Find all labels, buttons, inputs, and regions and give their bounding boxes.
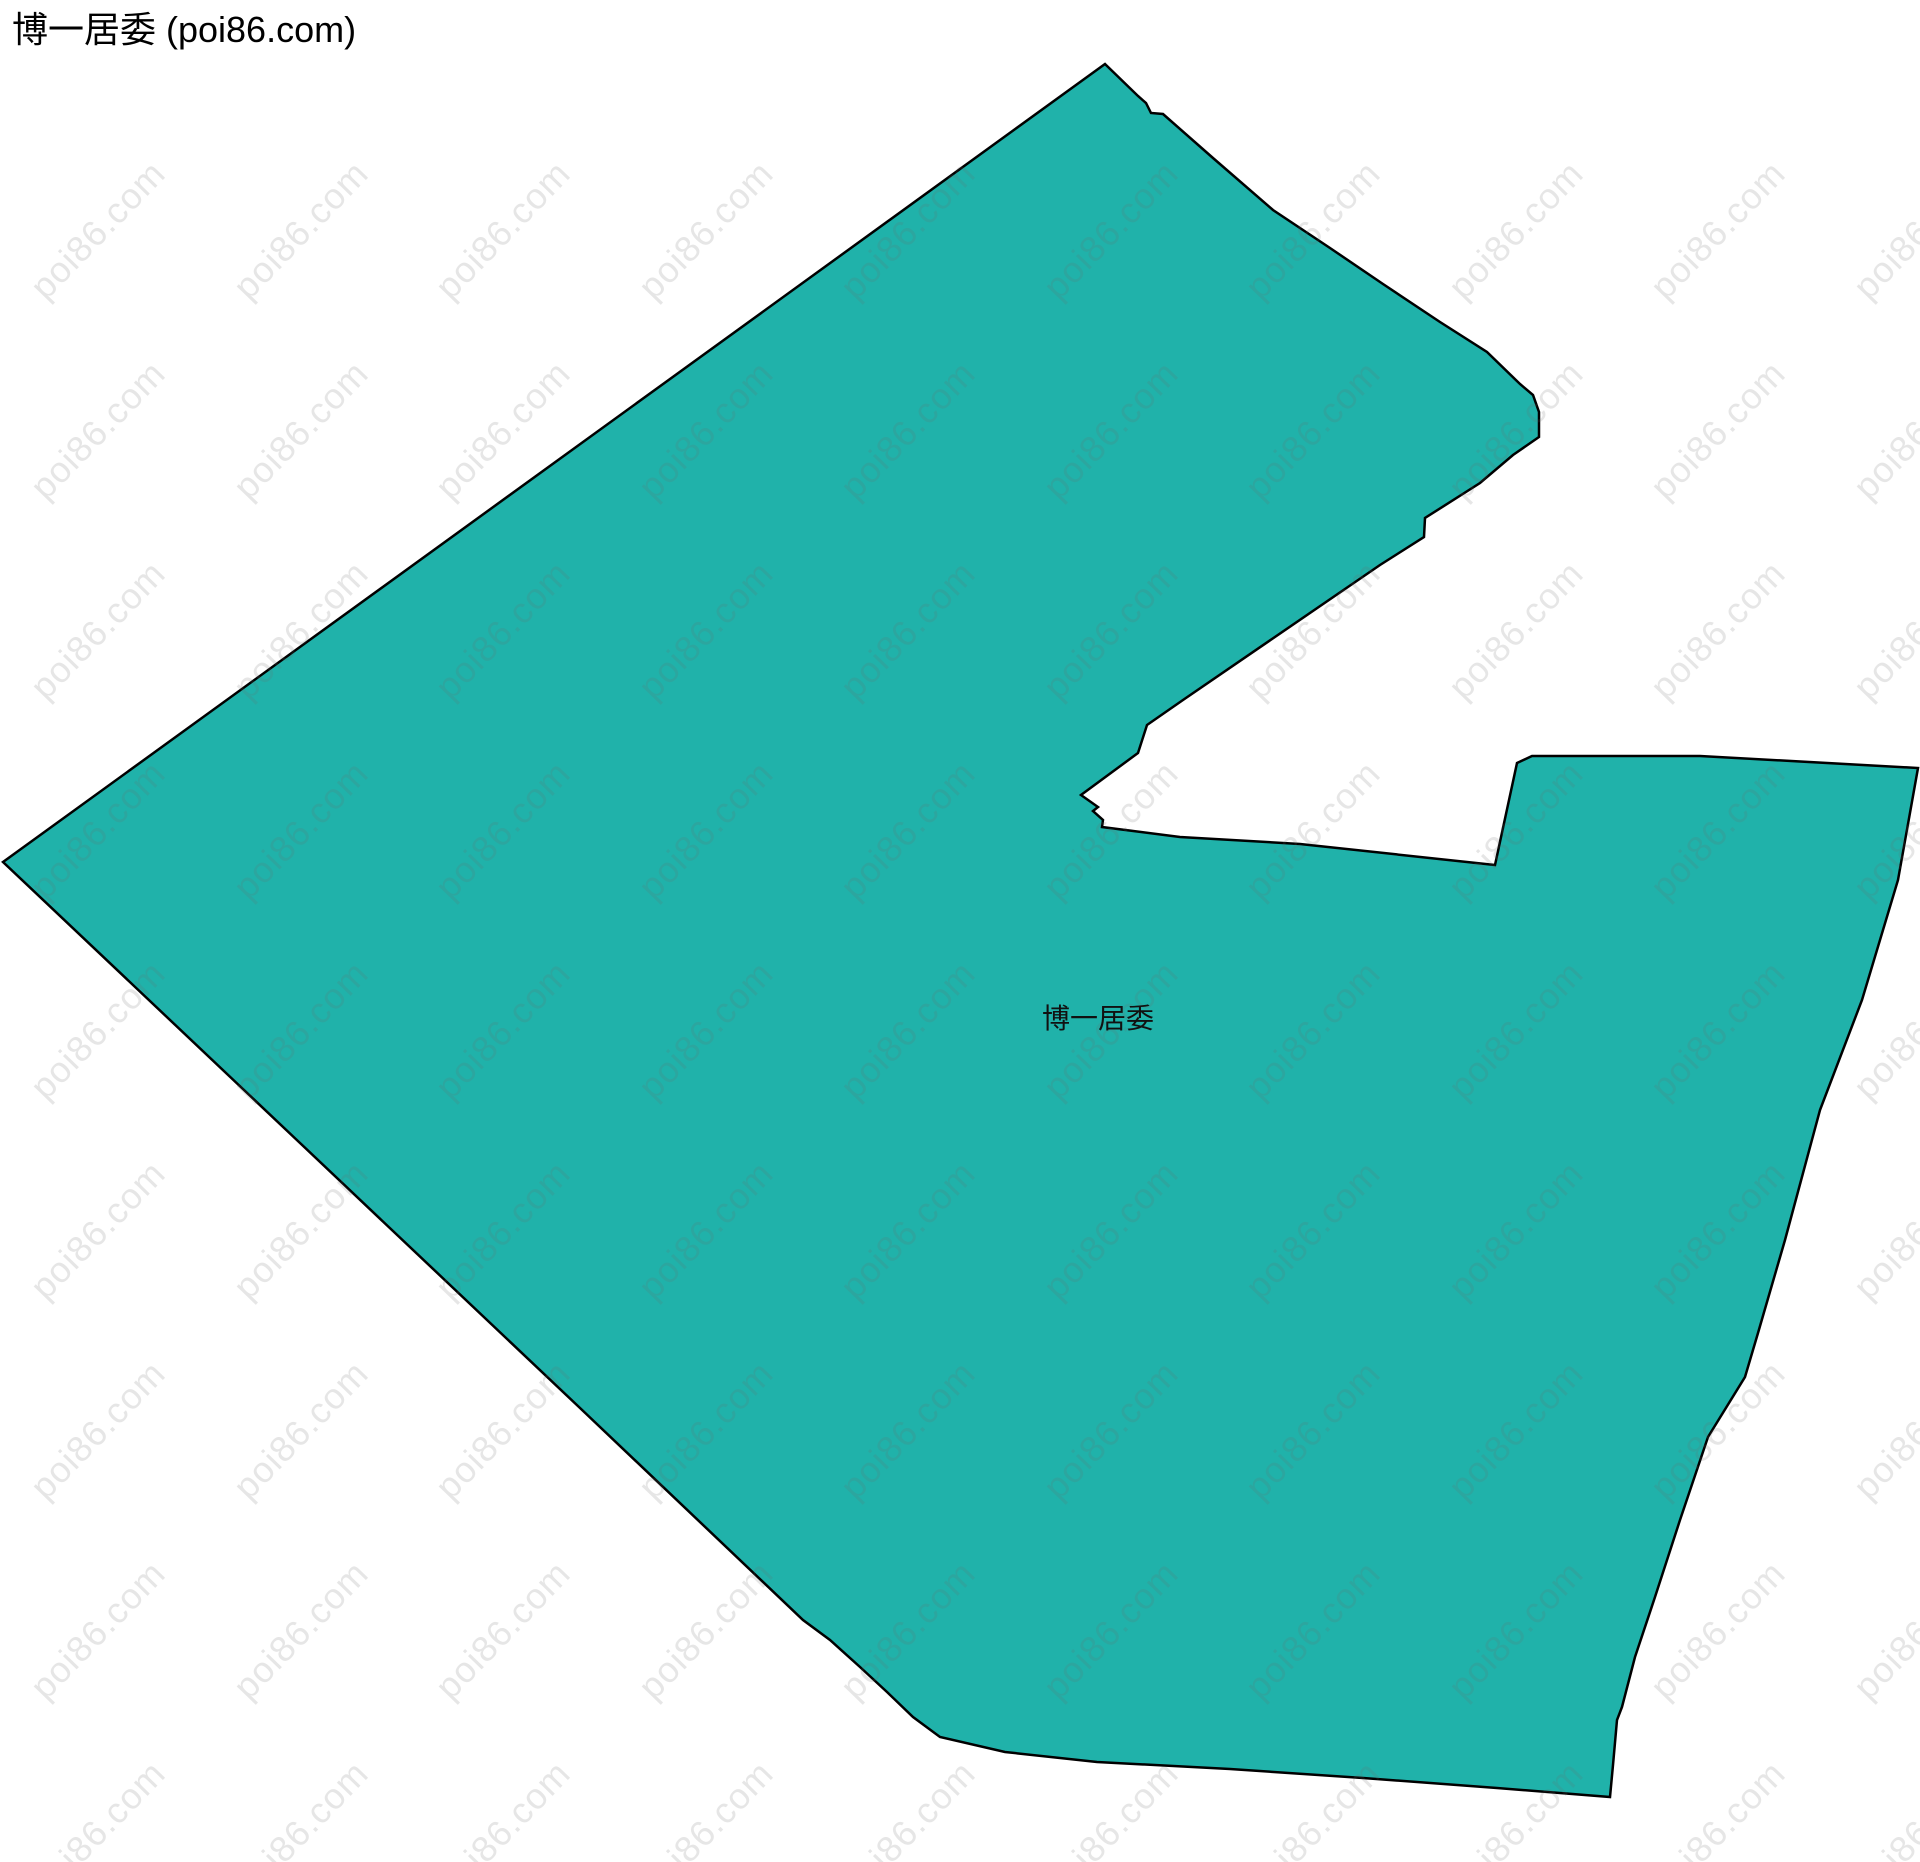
page-title: 博一居委 (poi86.com) (12, 8, 356, 51)
boundary-map-svg (0, 0, 1920, 1862)
region-label: 博一居委 (1042, 997, 1154, 1037)
region-boundary-polygon (3, 64, 1918, 1797)
map-canvas: poi86.compoi86.compoi86.compoi86.compoi8… (0, 0, 1920, 1862)
